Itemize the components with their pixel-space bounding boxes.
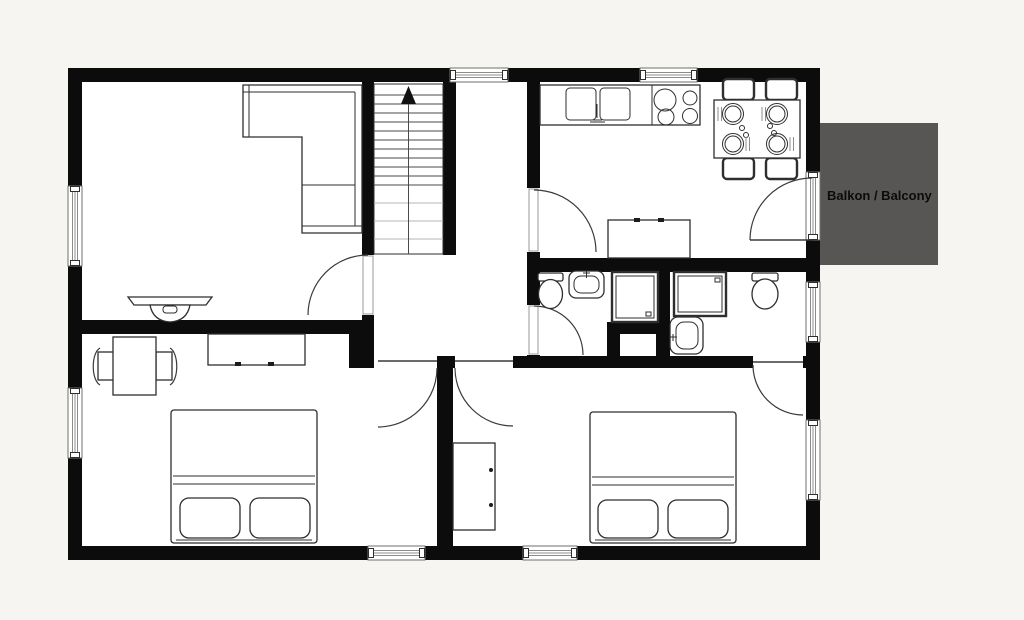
bedroom-1-dresser: [208, 334, 305, 366]
balcony-label: Balkon / Balcony: [827, 188, 933, 203]
pillow: [250, 498, 310, 538]
floor-plan-drawing: Balkon / Balcony: [0, 0, 1024, 620]
bedroom-2-bed: [590, 412, 736, 543]
window-bedroom-1-left: [68, 388, 82, 458]
window-living-room-left: [68, 186, 82, 266]
window-bedroom-2-right: [806, 420, 820, 500]
window-kitchen-top: [640, 68, 697, 82]
bathroom-2-toilet: [752, 273, 778, 309]
bedroom-2-wardrobe: [453, 443, 495, 530]
window-bedroom-1-bottom: [368, 546, 425, 560]
window-corridor-top: [450, 68, 508, 82]
staircase: [374, 84, 443, 254]
balcony-area: Balkon / Balcony: [818, 123, 938, 265]
bathroom-1-toilet: [538, 273, 563, 309]
kitchen-counter: [540, 85, 700, 125]
utility-shaft: [620, 334, 656, 356]
pillow: [668, 500, 728, 538]
balcony-door-frame: [806, 172, 820, 240]
bathroom-1-washbasin: [569, 271, 604, 298]
bathroom-2-shower: [674, 272, 726, 316]
desk: [113, 337, 156, 395]
floor-plan-canvas: Balkon / Balcony: [0, 0, 1024, 620]
window-bathroom-2-right: [806, 282, 820, 342]
kitchen-sideboard: [608, 218, 690, 258]
bedroom-1-bed: [171, 410, 317, 543]
pillow: [598, 500, 658, 538]
pillow: [180, 498, 240, 538]
bathroom-1-shower: [612, 272, 658, 322]
bathroom-2-washbasin: [670, 317, 703, 354]
window-bedroom-2-bottom: [523, 546, 577, 560]
